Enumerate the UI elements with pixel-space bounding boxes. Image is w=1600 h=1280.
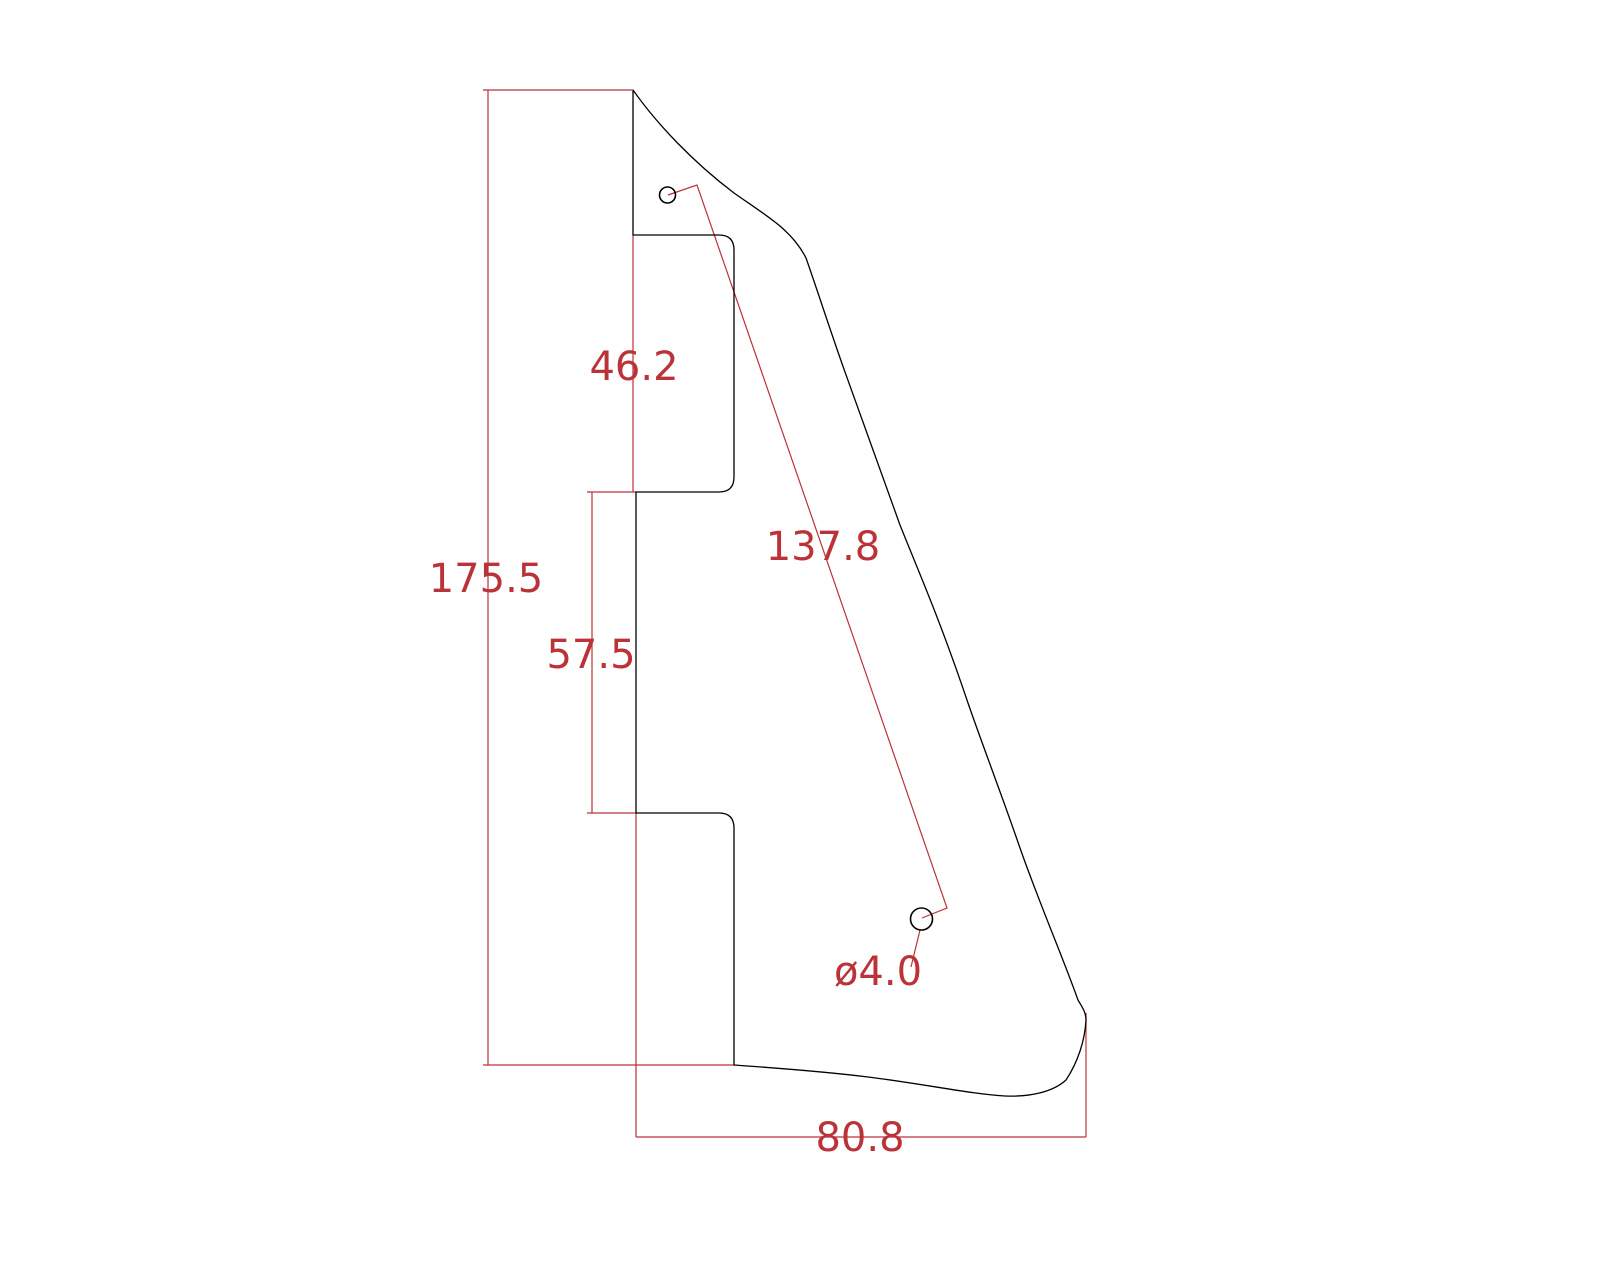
mounting-hole-bottom <box>911 908 933 930</box>
dimension-label-hole-diameter: ø4.0 <box>834 949 922 995</box>
dimension-label-left-edge-middle: 57.5 <box>546 632 635 678</box>
dimension-labels-layer: 175.5 46.2 57.5 137.8 80.8 ø4.0 <box>429 344 922 1161</box>
dimension-label-pickup-cutout-height: 46.2 <box>589 344 678 390</box>
dimension-lines-layer <box>483 90 1086 1137</box>
pickguard-outline <box>633 90 1086 1096</box>
technical-drawing-canvas: 175.5 46.2 57.5 137.8 80.8 ø4.0 <box>0 0 1600 1280</box>
dimension-label-overall-height: 175.5 <box>429 556 544 602</box>
mounting-hole-top <box>660 187 676 203</box>
dimension-label-hole-distance: 137.8 <box>766 524 881 570</box>
dimension-label-overall-width: 80.8 <box>815 1115 904 1161</box>
cad-drawing-page: 175.5 46.2 57.5 137.8 80.8 ø4.0 <box>0 0 1600 1280</box>
